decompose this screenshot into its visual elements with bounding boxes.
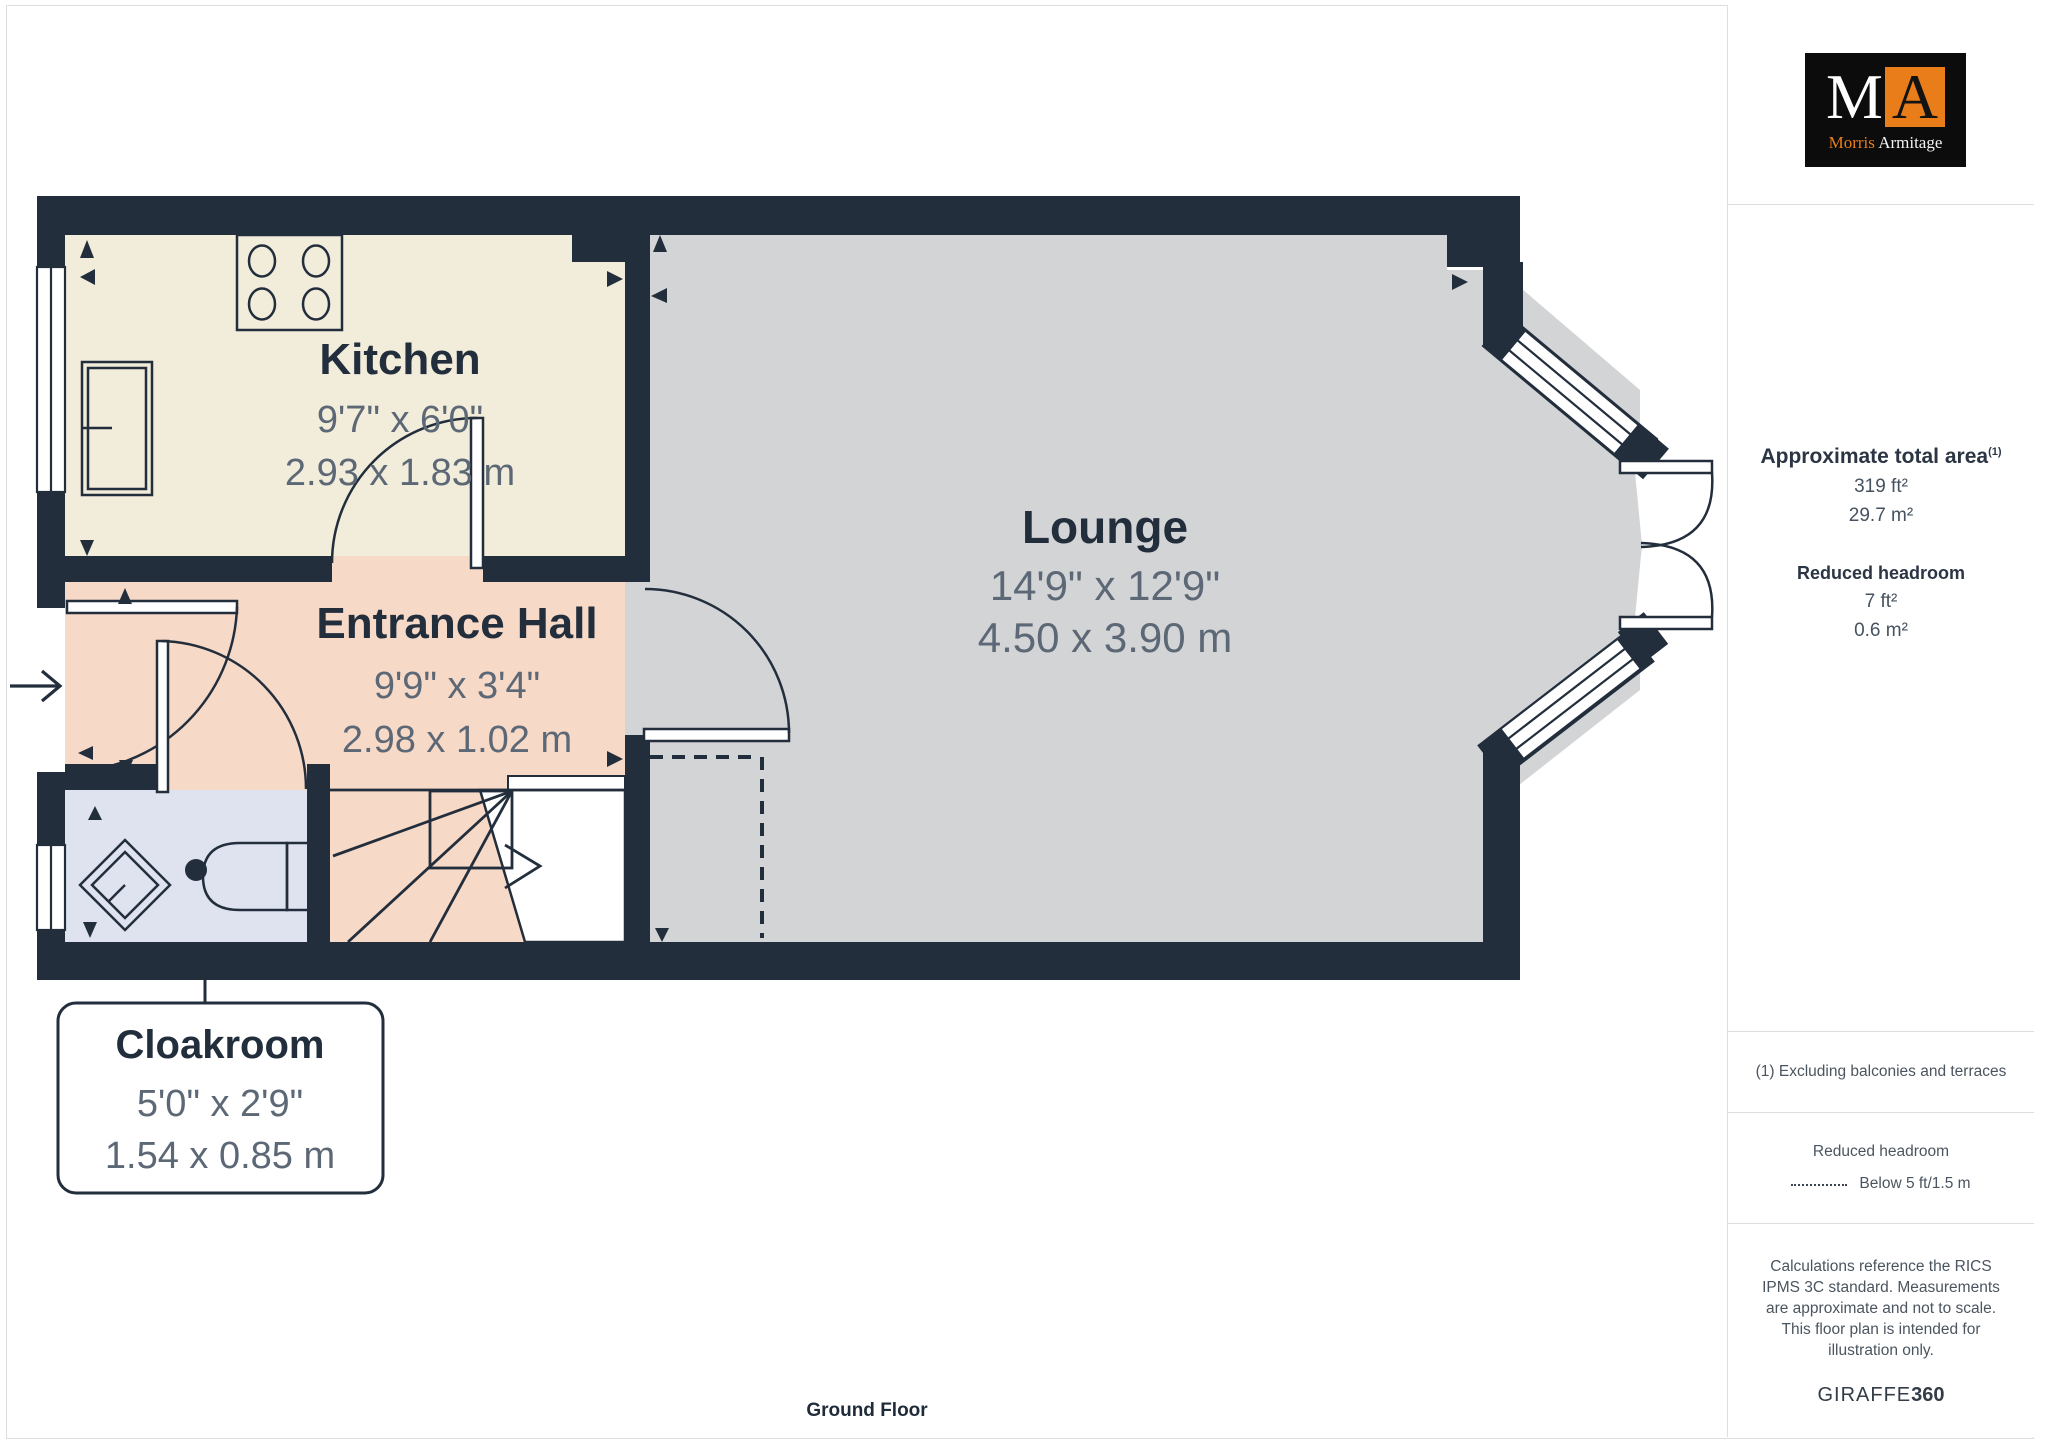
room-floors <box>65 235 1642 942</box>
logo-name: Morris Armitage <box>1829 133 1943 153</box>
total-area-metric: 29.7 m² <box>1728 505 2034 527</box>
floor-title: Ground Floor <box>767 1400 967 1422</box>
logo-letter-m: M <box>1826 67 1883 127</box>
entrance-hall-dims-metric: 2.98 x 1.02 m <box>342 719 572 761</box>
lounge-dims-metric: 4.50 x 3.90 m <box>978 614 1232 661</box>
lounge-dims-imperial: 14'9" x 12'9" <box>990 562 1220 609</box>
total-area-imperial: 319 ft² <box>1728 476 2034 498</box>
entrance-hall-label: Entrance Hall <box>316 599 597 648</box>
logo-initials: M A <box>1826 67 1945 127</box>
logo-letter-a: A <box>1885 67 1945 127</box>
brand-name: GIRAFFE <box>1817 1384 1911 1406</box>
legend-title: Reduced headroom <box>1728 1143 2034 1161</box>
kitchen-dims-imperial: 9'7" x 6'0" <box>317 399 483 441</box>
stair-landing-band <box>508 776 625 790</box>
footnote-section: (1) Excluding balconies and terraces <box>1728 1032 2034 1113</box>
logo-name-first: Morris <box>1829 133 1875 152</box>
kitchen-floor <box>65 235 625 556</box>
legend-section: Reduced headroom Below 5 ft/1.5 m <box>1728 1113 2034 1224</box>
lounge-door-threshold <box>625 582 650 735</box>
disclaimer-section: Calculations reference the RICS IPMS 3C … <box>1728 1224 2034 1435</box>
logo-name-last: Armitage <box>1878 133 1942 152</box>
floor-plan: Kitchen 9'7" x 6'0" 2.93 x 1.83 m Lounge… <box>0 0 1727 1448</box>
cloakroom-callout: Cloakroom 5'0" x 2'9" 1.54 x 0.85 m <box>58 955 383 1193</box>
legend-item: Below 5 ft/1.5 m <box>1859 1175 1970 1193</box>
cloakroom-dims-metric: 1.54 x 0.85 m <box>105 1135 335 1177</box>
area-summary-section: Approximate total area(1) 319 ft² 29.7 m… <box>1728 205 2034 1032</box>
reduced-headroom-metric: 0.6 m² <box>1728 620 2034 642</box>
brand-suffix: 360 <box>1911 1384 1944 1406</box>
reduced-headroom-title: Reduced headroom <box>1728 563 2034 584</box>
entry-arrow-icon <box>10 671 60 701</box>
kitchen-doorway-floor <box>332 556 483 582</box>
logo-section: M A Morris Armitage <box>1728 5 2034 205</box>
disclaimer-text: Calculations reference the RICS IPMS 3C … <box>1754 1256 2008 1361</box>
entrance-hall-dims-imperial: 9'9" x 3'4" <box>374 665 540 707</box>
dashed-line-icon <box>1791 1182 1847 1186</box>
total-area-footnote-ref: (1) <box>1988 446 2001 458</box>
cloakroom-label: Cloakroom <box>116 1023 325 1067</box>
info-sidebar: M A Morris Armitage Approximate total ar… <box>1727 5 2034 1437</box>
kitchen-dims-metric: 2.93 x 1.83 m <box>285 452 515 494</box>
total-area-title: Approximate total area(1) <box>1728 445 2034 469</box>
agency-logo: M A Morris Armitage <box>1805 53 1966 167</box>
hob-icon <box>237 235 342 330</box>
cloakroom-doorway-floor <box>158 764 307 790</box>
cloakroom-dims-imperial: 5'0" x 2'9" <box>137 1083 303 1125</box>
lounge-label: Lounge <box>1022 501 1188 553</box>
giraffe360-brand: GIRAFFE360 <box>1754 1385 2008 1406</box>
footnote-text: (1) Excluding balconies and terraces <box>1756 1063 2007 1081</box>
cloakroom-window <box>37 845 65 930</box>
kitchen-label: Kitchen <box>319 335 480 384</box>
kitchen-window <box>37 267 65 492</box>
reduced-headroom-imperial: 7 ft² <box>1728 591 2034 613</box>
total-area-title-text: Approximate total area <box>1760 445 1988 468</box>
